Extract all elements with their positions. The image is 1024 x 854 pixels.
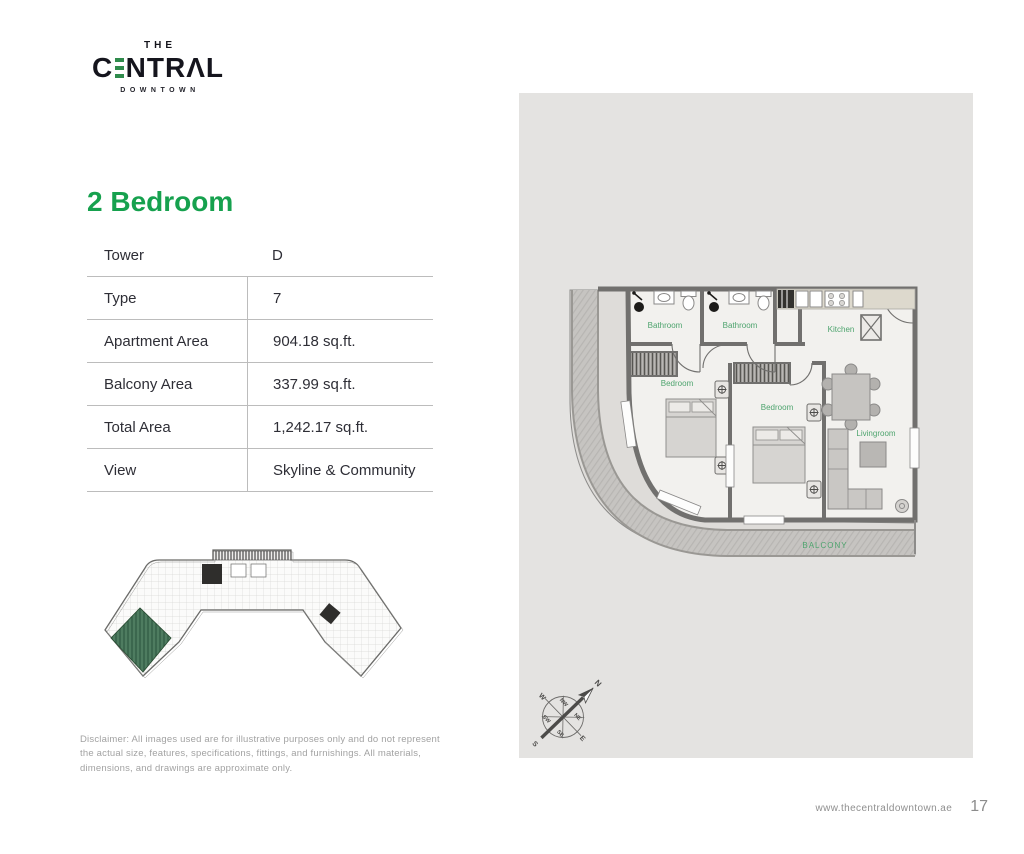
disclaimer-text: Disclaimer: All images used are for illu… xyxy=(80,733,448,777)
spec-row-apartment-area: Apartment Area 904.18 sq.ft. xyxy=(87,320,433,363)
compass-sw: SW xyxy=(541,714,552,725)
brand-logo-the: THE xyxy=(92,40,224,51)
key-plan-core-block xyxy=(202,564,222,584)
balcony-label: BALCONY xyxy=(802,541,847,550)
key-plan-lift xyxy=(251,564,266,577)
spec-label: View xyxy=(87,449,247,491)
page-title: 2 Bedroom xyxy=(87,186,233,218)
floor-plan-panel: Bathroom Bathroom Kitchen Bedroom Bedroo… xyxy=(519,93,973,758)
brand-logo-name-suffix: NTRΛL xyxy=(126,54,224,82)
compass-nw: NW xyxy=(558,697,569,708)
bathroom-label: Bathroom xyxy=(648,321,683,330)
spec-label: Tower xyxy=(87,234,247,276)
spec-row-balcony-area: Balcony Area 337.99 sq.ft. xyxy=(87,363,433,406)
bed xyxy=(666,399,716,457)
spec-value: Skyline & Community xyxy=(247,449,433,491)
bathroom-label: Bathroom xyxy=(723,321,758,330)
spec-label: Balcony Area xyxy=(87,363,247,405)
key-plan-lift xyxy=(231,564,246,577)
spec-value: 7 xyxy=(247,277,433,319)
spec-label: Apartment Area xyxy=(87,320,247,362)
unit-spec-table: Tower D Type 7 Apartment Area 904.18 sq.… xyxy=(87,234,433,492)
spec-row-tower: Tower D xyxy=(87,234,433,277)
spec-row-total-area: Total Area 1,242.17 sq.ft. xyxy=(87,406,433,449)
bedroom-label: Bedroom xyxy=(661,379,694,388)
brand-logo-e-bars-icon xyxy=(115,58,123,78)
page-footer: www.thecentraldowntown.ae 17 xyxy=(815,798,988,816)
spec-label: Type xyxy=(87,277,247,319)
spec-value: 904.18 sq.ft. xyxy=(247,320,433,362)
compass-ne: NE xyxy=(572,712,582,722)
bed xyxy=(753,427,805,483)
compass-e: E xyxy=(578,735,587,743)
compass-n: N xyxy=(593,678,604,689)
building-key-plan xyxy=(95,546,410,686)
livingroom-label: Livingroom xyxy=(856,429,895,438)
compass-rose-icon: N S E W NE NW SE SW xyxy=(519,657,623,758)
key-plan-core-hatch xyxy=(213,551,291,560)
spec-row-view: View Skyline & Community xyxy=(87,449,433,492)
brand-logo-name-prefix: C xyxy=(92,54,113,82)
compass-s: S xyxy=(530,740,539,748)
kitchen-label: Kitchen xyxy=(828,325,855,334)
spec-value: 1,242.17 sq.ft. xyxy=(247,406,433,448)
website-link[interactable]: www.thecentraldowntown.ae xyxy=(815,803,952,814)
compass-w: W xyxy=(537,692,547,702)
brand-logo: THE C NTRΛL DOWNTOWN xyxy=(92,40,224,94)
brand-logo-name: C NTRΛL xyxy=(92,54,224,82)
brand-logo-subtitle: DOWNTOWN xyxy=(92,87,224,94)
spec-row-type: Type 7 xyxy=(87,277,433,320)
spec-label: Total Area xyxy=(87,406,247,448)
decor-plant xyxy=(896,500,909,513)
spec-value: D xyxy=(247,234,433,276)
coffee-table xyxy=(860,442,886,467)
spec-value: 337.99 sq.ft. xyxy=(247,363,433,405)
bedroom-label: Bedroom xyxy=(761,403,794,412)
page-number: 17 xyxy=(970,798,988,816)
wardrobe xyxy=(734,363,790,383)
floor-plan-drawing: Bathroom Bathroom Kitchen Bedroom Bedroo… xyxy=(519,93,973,758)
wardrobe xyxy=(630,352,677,376)
